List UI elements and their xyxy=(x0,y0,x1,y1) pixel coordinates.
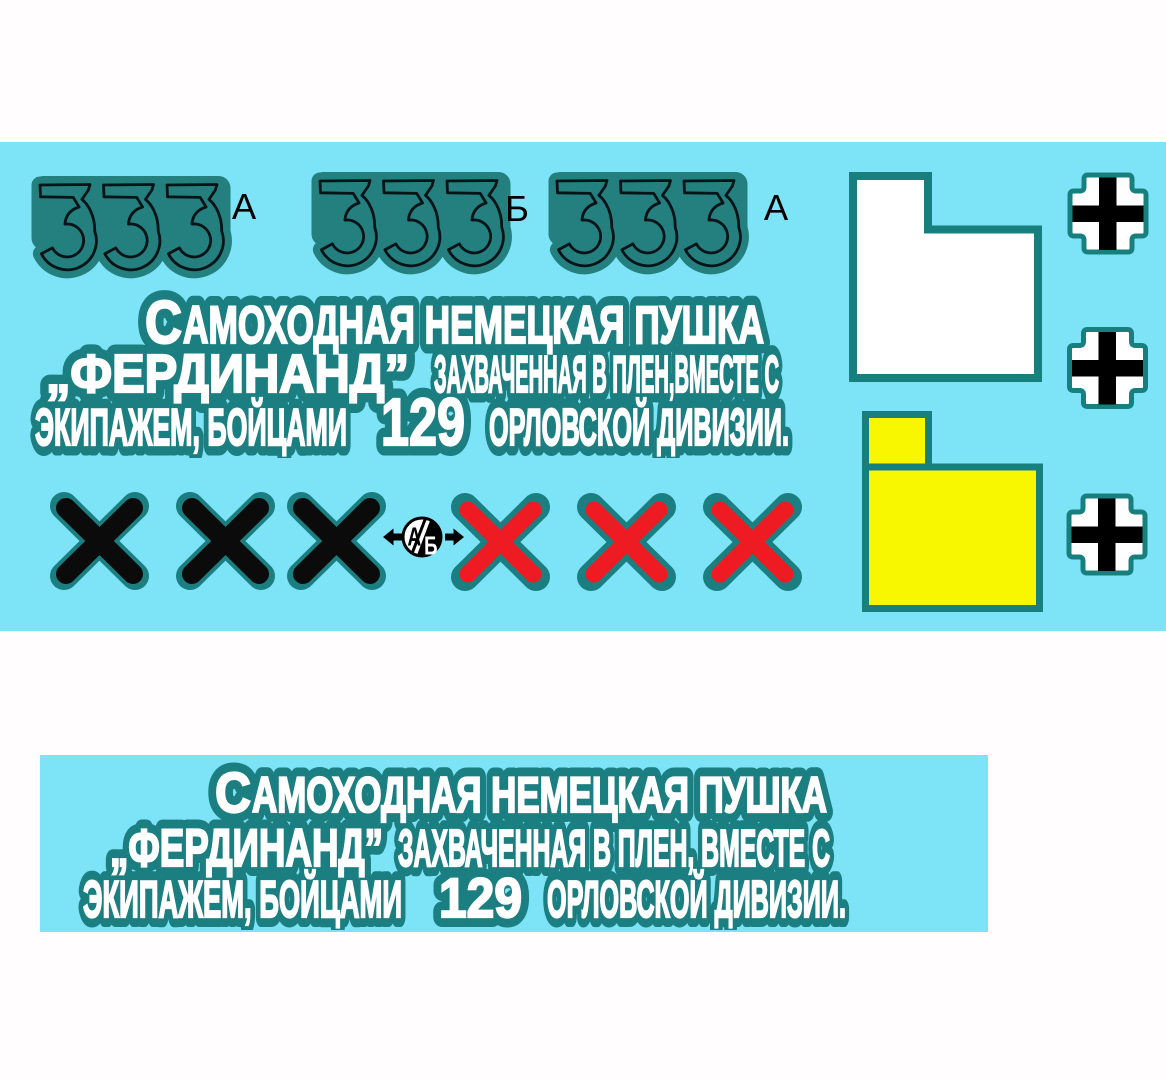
svg-text:АМОХОДНАЯ НЕМЕЦКАЯ ПУШКА: АМОХОДНАЯ НЕМЕЦКАЯ ПУШКА xyxy=(252,766,827,823)
svg-text:ОРЛОВСКОЙ ДИВИЗИИ.: ОРЛОВСКОЙ ДИВИЗИИ. xyxy=(489,398,789,457)
svg-text:С: С xyxy=(215,761,251,825)
svg-text:129: 129 xyxy=(381,385,465,460)
svg-text:„ФЕРДИНАНД”: „ФЕРДИНАНД” xyxy=(46,344,409,404)
svg-text:129: 129 xyxy=(439,866,522,929)
svg-text:А: А xyxy=(764,187,789,228)
svg-text:А: А xyxy=(407,522,421,552)
svg-text:ЭКИПАЖЕМ, БОЙЦАМИ: ЭКИПАЖЕМ, БОЙЦАМИ xyxy=(83,870,402,929)
svg-text:Б: Б xyxy=(505,188,529,229)
svg-text:А: А xyxy=(232,186,257,227)
svg-text:ОРЛОВСКОЙ ДИВИЗИИ.: ОРЛОВСКОЙ ДИВИЗИИ. xyxy=(547,870,846,929)
svg-text:ЗАХВАЧЕННАЯ В ПЛЕН,ВМЕСТЕ С: ЗАХВАЧЕННАЯ В ПЛЕН,ВМЕСТЕ С xyxy=(434,345,779,403)
svg-text:ЭКИПАЖЕМ, БОЙЦАМИ: ЭКИПАЖЕМ, БОЙЦАМИ xyxy=(35,398,347,457)
svg-text:Б: Б xyxy=(424,530,437,560)
svg-text:„ФЕРДИНАНД”: „ФЕРДИНАНД” xyxy=(110,819,383,878)
